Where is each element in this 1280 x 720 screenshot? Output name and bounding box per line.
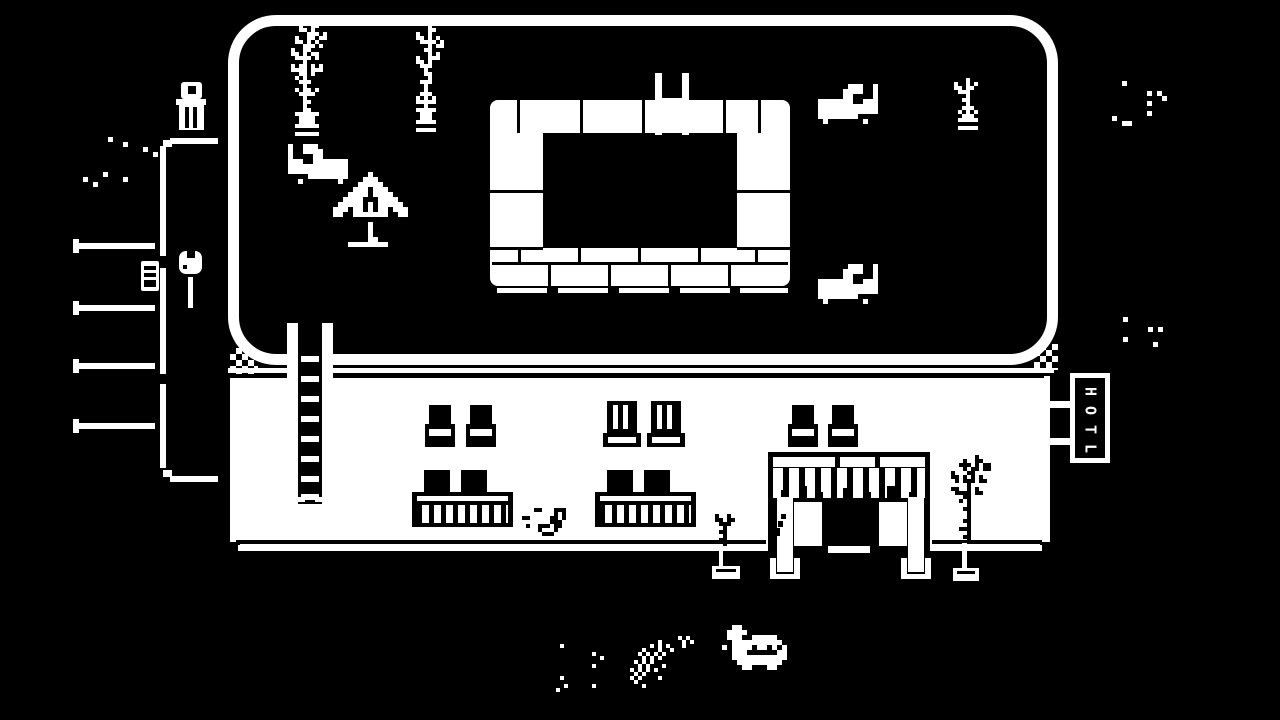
parking-stripe — [79, 305, 155, 311]
pool-ladder-icon — [682, 73, 689, 135]
pool-shadow-dash — [558, 288, 608, 293]
window-top — [429, 405, 451, 424]
fence-balusters — [600, 505, 691, 524]
brick-seam — [728, 265, 731, 286]
brick-seam — [517, 100, 520, 133]
wall-ladder-rung — [301, 356, 319, 362]
pool-shadow-dash — [619, 288, 669, 293]
parking-stripe-cap — [73, 301, 79, 315]
window-sill — [608, 437, 636, 443]
window-sill — [792, 429, 814, 436]
parking-stripe-cap — [73, 239, 79, 253]
awning-divider — [875, 457, 880, 467]
brick-seam — [548, 265, 551, 286]
sign-arm — [1050, 438, 1072, 445]
courtyard-wall — [170, 138, 218, 144]
hotel-sign-letter: O — [1081, 401, 1100, 421]
meter-post — [188, 277, 193, 308]
parking-stripe-cap — [73, 419, 79, 433]
meter-notch — [187, 251, 195, 258]
pillar-foot — [901, 574, 931, 579]
parking-stripe — [79, 243, 155, 249]
plant-stem — [962, 543, 967, 570]
turtle-creature-icon — [712, 625, 792, 670]
pool-shadow-dash — [680, 288, 730, 293]
window-sill — [832, 429, 854, 436]
wall-ladder-rail — [287, 323, 298, 508]
keypad-slit — [144, 273, 156, 277]
entrance-inner-wall — [794, 502, 822, 546]
wall-ladder-foot — [315, 497, 322, 502]
potted-plant-icon — [950, 78, 986, 130]
pool-shadow-dash — [497, 288, 547, 293]
beach-umbrella-icon — [333, 172, 413, 247]
brick-seam — [492, 262, 788, 265]
sign-arm — [1050, 401, 1072, 408]
plant-pot-band — [957, 571, 975, 574]
window-sill — [470, 429, 492, 436]
lounge-chair-icon — [818, 264, 883, 304]
small-creature-icon — [518, 508, 570, 536]
pool-water — [543, 133, 737, 248]
plant-stem — [719, 546, 723, 568]
pillar-crack — [781, 514, 786, 519]
pool-ladder-icon — [655, 73, 662, 135]
planter-box — [644, 470, 670, 493]
wall-ladder-rung — [301, 476, 319, 482]
building-bottom-strip — [930, 545, 1042, 551]
wall-ladder-rung — [301, 376, 319, 382]
wall-ladder-rung — [301, 456, 319, 462]
awning-divider — [835, 457, 840, 467]
brick-seam — [608, 265, 611, 286]
fence-post — [508, 505, 513, 524]
hotel-sign-letter: L — [1081, 439, 1100, 459]
courtyard-wall — [160, 384, 166, 468]
dither-shading — [230, 458, 242, 532]
pool-ladder-rung — [662, 122, 682, 127]
brick-seam — [642, 100, 645, 133]
potted-plant-icon — [943, 455, 1003, 543]
dither-shading — [1038, 376, 1050, 406]
building-bottom-strip — [238, 545, 768, 551]
wall-ladder-foot — [298, 497, 305, 502]
plant-pot-band — [716, 569, 736, 572]
brick-seam — [490, 247, 543, 250]
potted-plant-icon — [711, 514, 743, 546]
window-sill — [652, 437, 680, 443]
wall-ladder-rung — [301, 436, 319, 442]
meter-dot — [183, 265, 187, 269]
brick-seam — [578, 248, 581, 262]
brick-seam — [668, 265, 671, 286]
trash-can-slit — [193, 107, 197, 128]
awning-top-bar — [773, 457, 925, 467]
brick-seam — [737, 190, 790, 193]
lounge-chair-icon — [818, 84, 883, 124]
brick-seam — [580, 100, 583, 133]
courtyard-wall — [160, 268, 166, 374]
window-shutter-slit — [623, 405, 628, 429]
hotel-sign: H O T L — [1070, 373, 1110, 463]
planter-box — [461, 470, 487, 493]
fence-post — [412, 505, 417, 524]
pool-ladder-rung — [662, 110, 682, 115]
fringe-notch — [843, 488, 851, 502]
window-top — [832, 405, 854, 424]
fringe-notch — [799, 486, 807, 502]
brick-seam — [638, 248, 641, 262]
window-top — [607, 401, 637, 433]
pillar-foot — [770, 574, 800, 579]
brick-seam — [758, 100, 761, 133]
window-top — [651, 401, 681, 433]
keypad-panel — [144, 280, 156, 287]
ground-specks — [1112, 76, 1167, 126]
brick-seam — [518, 248, 521, 262]
potted-plant-icon — [287, 20, 339, 136]
fence-post — [691, 505, 696, 524]
hotel-sign-letter: T — [1081, 420, 1100, 440]
planter-box — [607, 470, 633, 493]
fence-balusters — [417, 505, 508, 524]
window-top — [792, 405, 814, 424]
door-step — [828, 546, 870, 553]
parking-stripe — [79, 363, 155, 369]
entrance-inner-wall — [879, 502, 907, 546]
fringe-notch — [817, 492, 823, 502]
planter-box — [424, 470, 450, 493]
fence-bottom — [412, 523, 513, 527]
plant-pot — [953, 568, 979, 581]
brick-seam — [755, 248, 758, 262]
keypad-slit — [144, 266, 156, 270]
window-shutter-slit — [657, 405, 662, 429]
wall-ladder-rail — [322, 323, 333, 508]
pillar-crack — [777, 528, 780, 536]
trash-can-icon — [179, 105, 204, 130]
ground-specks — [78, 112, 168, 187]
window-shutter-slit — [613, 405, 618, 429]
dither-shading — [230, 382, 242, 434]
sand-trail — [552, 640, 604, 692]
wall-ladder-rung — [301, 396, 319, 402]
dither-shading — [230, 348, 258, 374]
plant-pot — [712, 566, 740, 579]
building-base-seam — [236, 540, 766, 544]
dither-shading — [1038, 488, 1050, 540]
window-top — [470, 405, 492, 424]
pillar-crack — [778, 521, 783, 527]
hotel-sign-letter: H — [1081, 382, 1100, 402]
wall-ladder-rung — [301, 416, 319, 422]
dither-shading — [1038, 418, 1050, 460]
entrance-pillar — [908, 497, 924, 572]
pool-shadow-dash — [740, 288, 788, 293]
parking-stripe — [79, 423, 155, 429]
fence-rail-slit — [600, 496, 691, 501]
dither-shading — [1034, 344, 1058, 370]
courtyard-wall — [170, 476, 218, 482]
brick-seam — [490, 190, 543, 193]
sand-trail — [626, 636, 710, 688]
fence-rail-slit — [417, 496, 508, 501]
game-screen[interactable]: H O T L — [0, 0, 1280, 720]
fringe-notch — [865, 492, 871, 502]
pool-ladder-rung — [662, 98, 682, 103]
building-roof-line — [228, 368, 1054, 373]
parking-stripe-cap — [73, 359, 79, 373]
window-sill — [429, 429, 451, 436]
fringe-notch — [887, 486, 895, 502]
window-shutter-slit — [667, 405, 672, 429]
potted-plant-icon — [408, 24, 460, 132]
trash-can-slit — [185, 107, 189, 128]
trash-can-hole — [188, 86, 196, 94]
brick-seam — [737, 247, 790, 250]
brick-seam — [698, 248, 701, 262]
ground-specks — [1118, 312, 1168, 352]
fence-post — [595, 505, 600, 524]
brick-seam — [723, 100, 726, 133]
fence-bottom — [595, 523, 696, 527]
